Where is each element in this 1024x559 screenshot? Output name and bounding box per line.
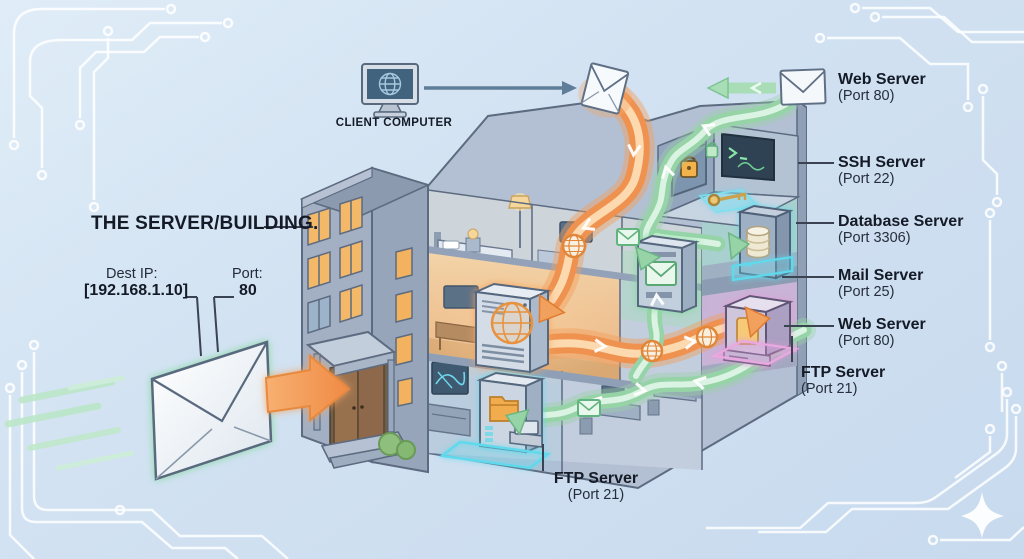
mail-server-tower: [638, 236, 696, 312]
label-ftp-server-right: FTP Server (Port 21): [801, 364, 885, 397]
lock-badge-icon: [707, 143, 718, 157]
dest-ip-value: [192.168.1.10]: [84, 282, 188, 300]
port-building-diagram: CLIENT COMPUTER THE SERVER/BUILDING. Des…: [0, 0, 1024, 559]
label-ssh-server: SSH Server (Port 22): [838, 154, 925, 187]
label-ftp-server-bottom: FTP Server (Port 21): [548, 470, 644, 503]
label-web-server-right: Web Server (Port 80): [838, 316, 926, 349]
terminal-icon: [722, 134, 774, 180]
client-monitor-icon: [362, 64, 418, 117]
globe-icon: [492, 303, 532, 343]
database-icon: [747, 227, 769, 258]
ftp-server-tower: [480, 373, 542, 452]
label-web-server-top: Web Server (Port 80): [838, 71, 926, 104]
dest-ip-label: Dest IP:: [106, 266, 158, 282]
envelope-icon: [646, 262, 676, 285]
sparkle-icon: [961, 492, 1004, 538]
speed-lines: [8, 378, 132, 468]
port-label: Port:: [232, 266, 263, 282]
circuit-decoration-top-left: [10, 5, 232, 211]
building-illustration: [405, 101, 806, 488]
circuit-decoration-top-right: [816, 4, 1024, 412]
web-server-tower: [476, 284, 548, 372]
packet-envelope-large: [152, 342, 271, 479]
building-facade: [302, 168, 428, 472]
label-database-server: Database Server (Port 3306): [838, 213, 963, 246]
response-envelope-top-right: [780, 69, 825, 105]
client-computer-label: CLIENT COMPUTER: [330, 117, 458, 129]
port-value: 80: [239, 282, 257, 300]
label-mail-server: Mail Server (Port 25): [838, 267, 923, 300]
building-label: THE SERVER/BUILDING.: [91, 213, 318, 235]
request-arrow: [424, 81, 577, 95]
